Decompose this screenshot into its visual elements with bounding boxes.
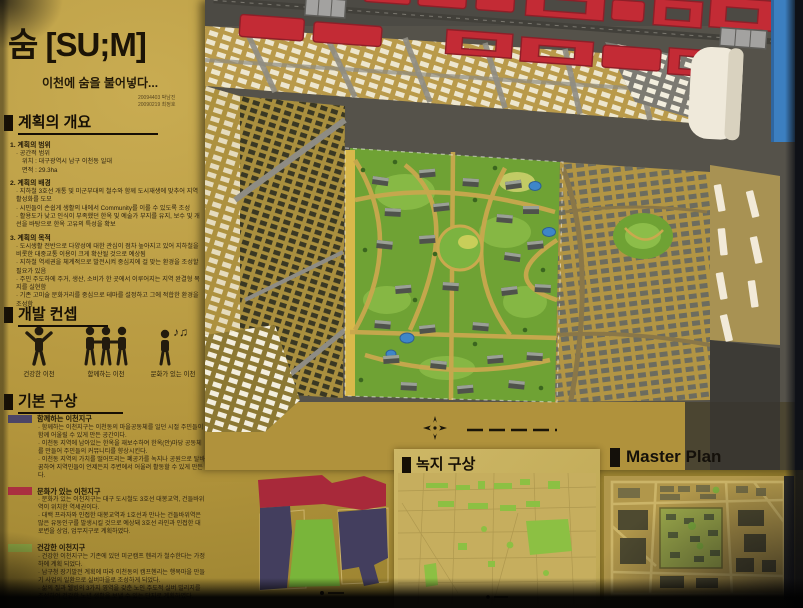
credit-line: 20094403 박남진 [138, 95, 175, 102]
person-arms-raised-icon [19, 324, 59, 366]
green-plan-panel: 녹지 구상 [394, 449, 600, 608]
zone-bullet: · 대백 프라자와 인접한 대봉교역과 1호선과 만나는 건들바위역은 많은 유… [8, 512, 206, 536]
concept-together: 함께하는 이천 [75, 324, 137, 378]
overview-line: 위치 : 대구광역시 남구 이천동 일대 [10, 158, 204, 166]
credits: 20094403 박남진 20090219 최정호 [138, 95, 175, 108]
zone-purple-west [260, 506, 292, 590]
zone-bullet: · 문화가 있는 이천지구는 대구 도시철도 3호선 대봉교역, 건들바위역이 … [8, 496, 206, 512]
overview-line: · 활용도가 낮고 인식이 부족했던 한옥 및 예술가 부지를 유지, 보수 및… [10, 213, 204, 230]
section-bullet-square [4, 307, 13, 323]
zone-color-swatch [8, 487, 32, 495]
west-hanok-district [205, 86, 345, 432]
zone-healthy: 건강한 이천지구 · 건강한 이천지구는 기존에 있던 미군캠프 헨리가 철수한… [8, 543, 206, 601]
section-bullet-square [4, 394, 13, 410]
zone-legend: 함께하는 이천지구 · 함께하는 이천지구는 이천동의 마을공동체를 일던 시절… [8, 414, 206, 608]
white-tower-model [687, 46, 744, 141]
concept-label: 문화가 있는 이천 [151, 369, 196, 378]
east-district [555, 162, 710, 402]
presentation-board: 숨 [SU;M] 이천에 숨을 불어넣다... 20094403 박남진 200… [0, 0, 803, 608]
concept-icons-row: 건강한 이천 함께하는 이천 [8, 324, 204, 378]
zone-purple-east [338, 508, 388, 586]
zone-bullet: · 이천동 지역에 남아있는 한옥을 재보수하여 한옥(안)마당 공동체를 만들… [8, 440, 206, 456]
zone-culture: 문화가 있는 이천지구 · 문화가 있는 이천지구는 대구 도시철도 3호선 대… [8, 487, 206, 537]
zone-color-swatch [8, 415, 32, 423]
concept-label: 함께하는 이천 [87, 369, 124, 378]
zone-green-area [289, 519, 340, 587]
zone-name: 문화가 있는 이천지구 [37, 487, 101, 497]
overview-item-title: 1. 계획의 범위 [10, 141, 204, 150]
music-notes-glyph: ♪♫ [173, 325, 188, 339]
board-title: 숨 [SU;M] [8, 18, 208, 66]
credit-line: 20090219 최정호 [138, 102, 175, 109]
zone-bullet: · 함께하는 이천지구는 이천동의 마을공동체를 일던 시절 주민들이 함께 어… [8, 424, 206, 440]
concept-label: 건강한 이천 [23, 369, 54, 378]
people-holding-hands-icon [79, 324, 133, 366]
section-bullet-square [610, 448, 620, 467]
zone-together: 함께하는 이천지구 · 함께하는 이천지구는 이천동의 마을공동체를 일던 시절… [8, 414, 206, 480]
overview-text: 1. 계획의 범위 · 공간적 범위 위치 : 대구광역시 남구 이천동 일대 … [10, 137, 204, 309]
overview-line: 면적 : 29.3ha [10, 167, 204, 175]
zone-bullet: · 남구청 장기발전 계획에 따라 이천동의 캠프헨리는 행복마을 만들기 사업… [8, 569, 206, 585]
tree-lined-strip [345, 150, 355, 396]
station-building-2 [720, 28, 767, 49]
person-music-icon: ♪♫ [151, 324, 195, 366]
text-column: 숨 [SU;M] 이천에 숨을 불어넣다... 20094403 박남진 200… [0, 0, 208, 608]
section-basic-heading: 기본 구상 [4, 390, 123, 414]
overview-line: · 주민 주도하에 주거, 생산, 소비가 한 곳에서 이루어지는 지역 완결형… [10, 276, 204, 293]
overview-line: · 지하철 역세권을 체계적으로 발전시켜 중심지에 걸 맞는 환경을 조성할 … [10, 259, 204, 276]
site-model-photo [205, 0, 803, 470]
concept-culture: ♪♫ 문화가 있는 이천 [142, 324, 204, 378]
circular-lawn [438, 226, 482, 270]
overview-item-title: 3. 계획의 목적 [10, 234, 204, 243]
zone-red-area [258, 475, 386, 510]
green-plan-map [398, 473, 596, 604]
central-park [345, 148, 560, 402]
overview-line: · 시민들이 손쉽게 생활의 내에서 Community를 이룰 수 있도록 조… [10, 205, 204, 213]
concept-healthy: 건강한 이천 [8, 324, 70, 378]
section-master-heading: Master Plan [610, 447, 721, 467]
zone-name: 건강한 이천지구 [37, 543, 85, 553]
station-building [305, 0, 346, 18]
zone-bullet: · 이천동 지역의 가치를 떨어뜨리는 폐공가를 녹지나 공원으로 탈바꿈하여 … [8, 456, 206, 480]
zone-bullet: · 건강한 이천지구는 기존에 있던 미군캠프 헨리가 철수한다는 가정하에 계… [8, 553, 206, 569]
zoning-diagram [246, 470, 396, 600]
section-bullet-square [4, 115, 13, 131]
blue-tape [773, 0, 795, 142]
overview-line: · 지하철 3호선 개통 및 미군부대의 철수와 함께 도시재생에 맞추어 지역… [10, 188, 204, 205]
section-bullet-square [402, 457, 411, 473]
zone-bullet: · 삶의 질과 웰빙의 3가지 영역을 갖춘 노인 주도적 실버 빌리지를 조성… [8, 585, 206, 601]
master-plan-map [604, 476, 794, 600]
board-subtitle: 이천에 숨을 불어넣다... [42, 74, 212, 91]
overview-item-title: 2. 계획의 배경 [10, 179, 204, 188]
master-plan-title: Master Plan [626, 447, 721, 467]
section-overview-heading: 계획의 개요 [4, 111, 158, 135]
zone-color-swatch [8, 544, 32, 552]
overview-line: · 도시생활 전반으로 다양성에 대한 관심이 점차 높아지고 있어 지하철을 … [10, 243, 204, 260]
zone-name: 함께하는 이천지구 [37, 414, 92, 424]
